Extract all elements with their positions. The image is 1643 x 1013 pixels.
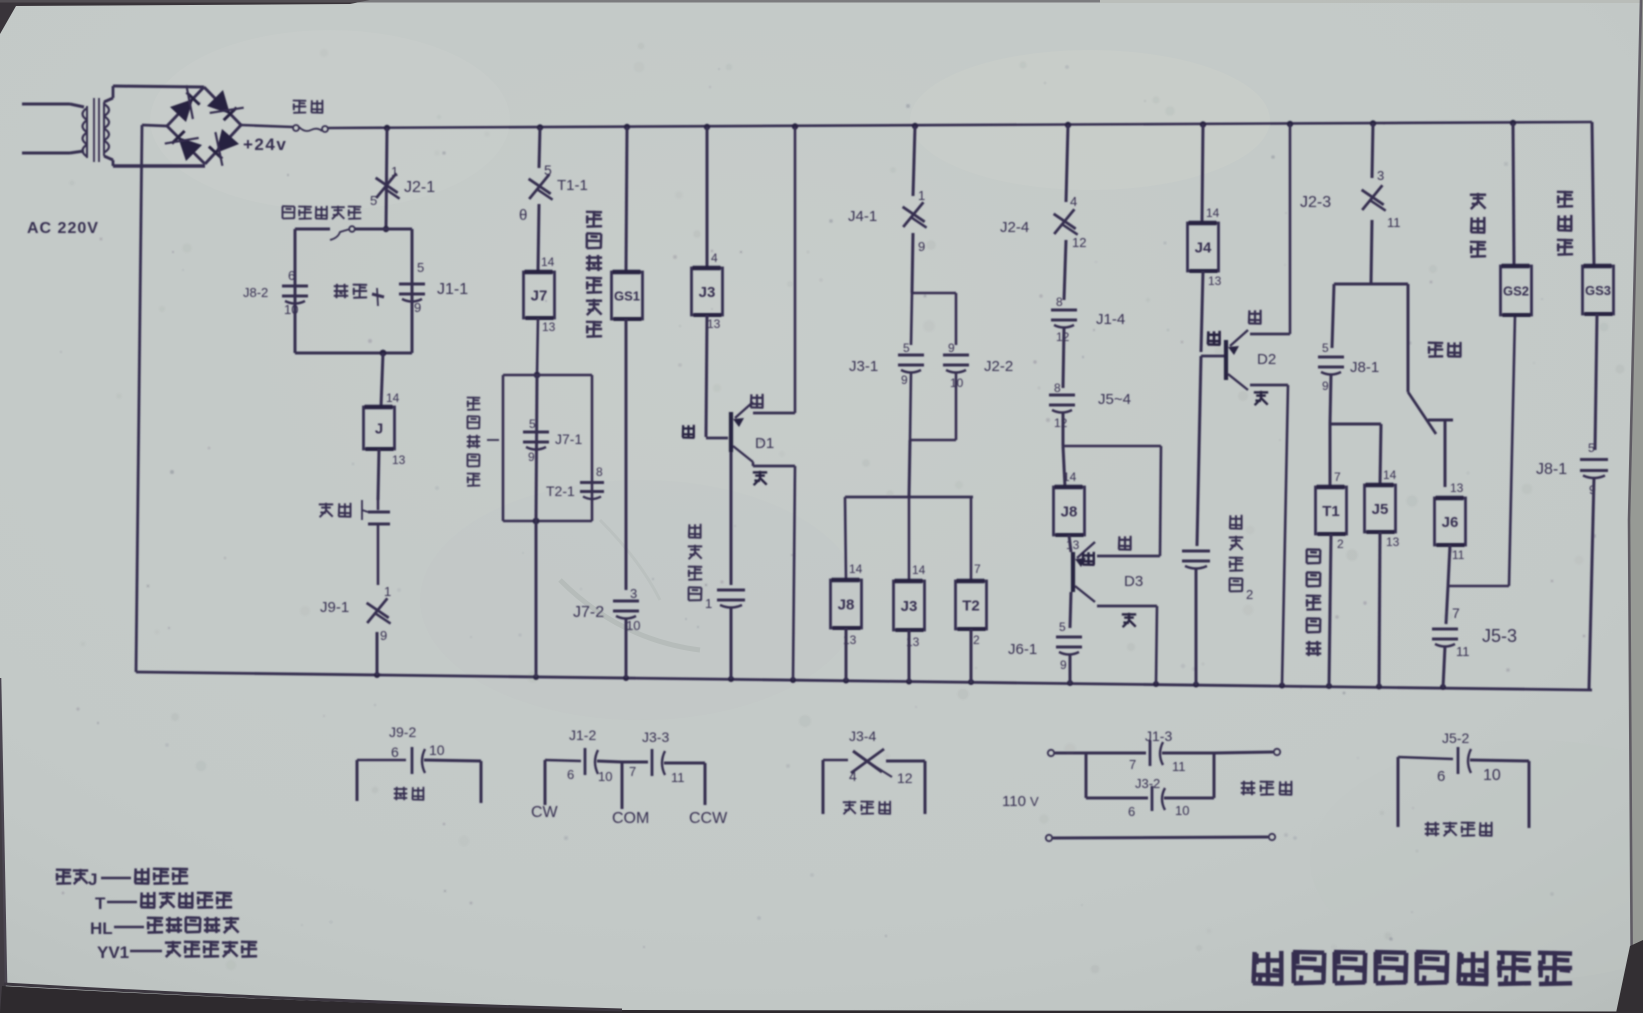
svg-text:T1: T1 [1322, 503, 1340, 520]
svg-text:J1-4: J1-4 [1096, 311, 1125, 328]
svg-text:10: 10 [1175, 803, 1189, 818]
svg-text:5: 5 [544, 162, 552, 178]
svg-text:10: 10 [598, 769, 612, 784]
svg-text:J4: J4 [1195, 240, 1212, 257]
svg-text:GS2: GS2 [1503, 283, 1529, 298]
svg-text:5: 5 [1322, 341, 1329, 355]
svg-text:J8: J8 [838, 597, 855, 614]
svg-text:10: 10 [626, 618, 640, 633]
svg-text:3: 3 [630, 586, 637, 601]
svg-text:J5: J5 [1372, 501, 1389, 518]
svg-text:8: 8 [1056, 295, 1063, 309]
svg-text:D3: D3 [1124, 573, 1143, 590]
svg-text:COM: COM [612, 810, 649, 827]
svg-text:J2-3: J2-3 [1300, 194, 1331, 211]
svg-text:14: 14 [849, 562, 863, 576]
svg-text:5: 5 [417, 260, 424, 275]
svg-text:13: 13 [1208, 274, 1222, 288]
svg-text:13: 13 [707, 317, 721, 331]
svg-text:14: 14 [1383, 468, 1397, 482]
svg-text:9: 9 [528, 450, 535, 464]
svg-text:J4-1: J4-1 [848, 208, 877, 225]
svg-text:6: 6 [567, 767, 574, 782]
svg-text:9: 9 [948, 341, 955, 355]
svg-text:7: 7 [1129, 757, 1136, 772]
svg-text:3: 3 [1377, 168, 1384, 183]
svg-text:J9-2: J9-2 [389, 724, 416, 740]
svg-text:2: 2 [1246, 587, 1253, 602]
svg-text:J1-1: J1-1 [437, 281, 468, 298]
svg-text:6: 6 [391, 744, 399, 760]
svg-text:J3-3: J3-3 [642, 729, 669, 745]
svg-text:J5-3: J5-3 [1482, 626, 1517, 646]
svg-text:J7-1: J7-1 [555, 431, 582, 447]
svg-text:6: 6 [1128, 804, 1135, 819]
svg-text:GS3: GS3 [1585, 283, 1611, 298]
svg-text:YV1: YV1 [97, 943, 129, 962]
svg-text:7: 7 [1452, 605, 1460, 621]
svg-text:10: 10 [429, 742, 445, 758]
svg-text:11: 11 [671, 770, 685, 785]
svg-text:J1-2: J1-2 [569, 727, 596, 743]
svg-text:J5-2: J5-2 [1442, 730, 1469, 746]
svg-text:5: 5 [370, 193, 377, 208]
svg-text:9: 9 [380, 628, 387, 643]
svg-text:13: 13 [392, 453, 406, 467]
svg-text:J6-1: J6-1 [1008, 641, 1037, 658]
svg-text:5: 5 [1588, 441, 1595, 455]
svg-text:14: 14 [386, 391, 400, 405]
svg-text:5: 5 [903, 341, 910, 355]
svg-text:J2-4: J2-4 [1000, 219, 1029, 236]
svg-text:7: 7 [1334, 470, 1341, 484]
svg-text:J2-2: J2-2 [984, 358, 1013, 375]
svg-text:14: 14 [1063, 470, 1077, 484]
svg-text:CCW: CCW [689, 810, 728, 827]
svg-text:11: 11 [1172, 759, 1186, 774]
svg-text:J3-4: J3-4 [849, 728, 876, 744]
svg-text:2: 2 [1337, 537, 1344, 551]
svg-text:T: T [95, 894, 106, 913]
svg-text:9: 9 [1060, 658, 1067, 672]
svg-text:D1: D1 [755, 435, 774, 452]
svg-text:4: 4 [711, 251, 718, 265]
svg-text:J: J [375, 421, 383, 438]
svg-text:+24v: +24v [243, 135, 287, 154]
svg-text:8: 8 [1054, 381, 1061, 395]
svg-text:13: 13 [1450, 481, 1464, 495]
svg-text:1: 1 [391, 164, 398, 179]
svg-text:9: 9 [414, 300, 421, 315]
svg-text:J5~4: J5~4 [1098, 391, 1131, 408]
svg-text:12: 12 [897, 770, 913, 786]
svg-text:T1-1: T1-1 [557, 177, 588, 194]
svg-text:11: 11 [1452, 548, 1465, 562]
svg-text:13: 13 [542, 320, 556, 334]
svg-text:T2-1: T2-1 [546, 483, 575, 499]
svg-text:13: 13 [1386, 535, 1400, 549]
svg-text:2: 2 [973, 633, 980, 647]
svg-text:11: 11 [1456, 644, 1470, 659]
svg-text:J7-2: J7-2 [573, 604, 604, 621]
svg-text:J9-1: J9-1 [320, 599, 349, 616]
svg-text:J8-2: J8-2 [243, 285, 268, 300]
svg-text:V: V [1030, 794, 1039, 809]
svg-text:14: 14 [541, 255, 555, 269]
svg-text:J8: J8 [1061, 504, 1078, 521]
svg-text:14: 14 [1206, 206, 1220, 220]
svg-text:8: 8 [596, 465, 603, 479]
svg-text:J: J [88, 870, 97, 889]
svg-text:J1-3: J1-3 [1145, 728, 1172, 744]
svg-text:J2-1: J2-1 [404, 179, 435, 196]
svg-text:1: 1 [705, 596, 712, 611]
svg-text:7: 7 [974, 562, 981, 576]
svg-text:J3-2: J3-2 [1135, 776, 1160, 791]
svg-text:5: 5 [1059, 620, 1066, 634]
svg-text:11: 11 [1387, 215, 1401, 230]
svg-text:6: 6 [288, 268, 295, 283]
svg-text:1: 1 [384, 584, 391, 599]
svg-text:GS1: GS1 [614, 288, 640, 303]
svg-text:10: 10 [1483, 767, 1501, 784]
svg-text:1: 1 [918, 188, 925, 203]
svg-text:D2: D2 [1257, 351, 1276, 368]
svg-text:9: 9 [1322, 379, 1329, 393]
svg-text:CW: CW [531, 804, 559, 821]
svg-text:4: 4 [1070, 194, 1077, 209]
svg-text:J8-1: J8-1 [1536, 461, 1567, 478]
svg-text:J6: J6 [1442, 514, 1459, 531]
svg-text:J3: J3 [699, 284, 716, 301]
svg-text:4: 4 [849, 768, 857, 784]
svg-text:HL: HL [90, 919, 113, 938]
svg-text:7: 7 [629, 764, 636, 779]
svg-text:110: 110 [1002, 793, 1026, 810]
svg-text:θ: θ [519, 207, 527, 224]
svg-text:6: 6 [1437, 768, 1445, 785]
svg-text:10: 10 [284, 302, 298, 317]
svg-text:T2: T2 [962, 598, 980, 615]
svg-text:J8-1: J8-1 [1350, 359, 1379, 376]
svg-text:5: 5 [529, 417, 536, 431]
svg-text:12: 12 [1054, 416, 1068, 430]
svg-text:9: 9 [918, 239, 925, 254]
svg-text:AC 220V: AC 220V [27, 220, 99, 237]
svg-text:J7: J7 [531, 288, 548, 305]
svg-text:13: 13 [1066, 538, 1080, 552]
svg-text:J3-1: J3-1 [849, 358, 878, 375]
svg-text:14: 14 [912, 563, 926, 577]
svg-text:12: 12 [1072, 235, 1086, 250]
svg-text:9: 9 [901, 373, 908, 387]
